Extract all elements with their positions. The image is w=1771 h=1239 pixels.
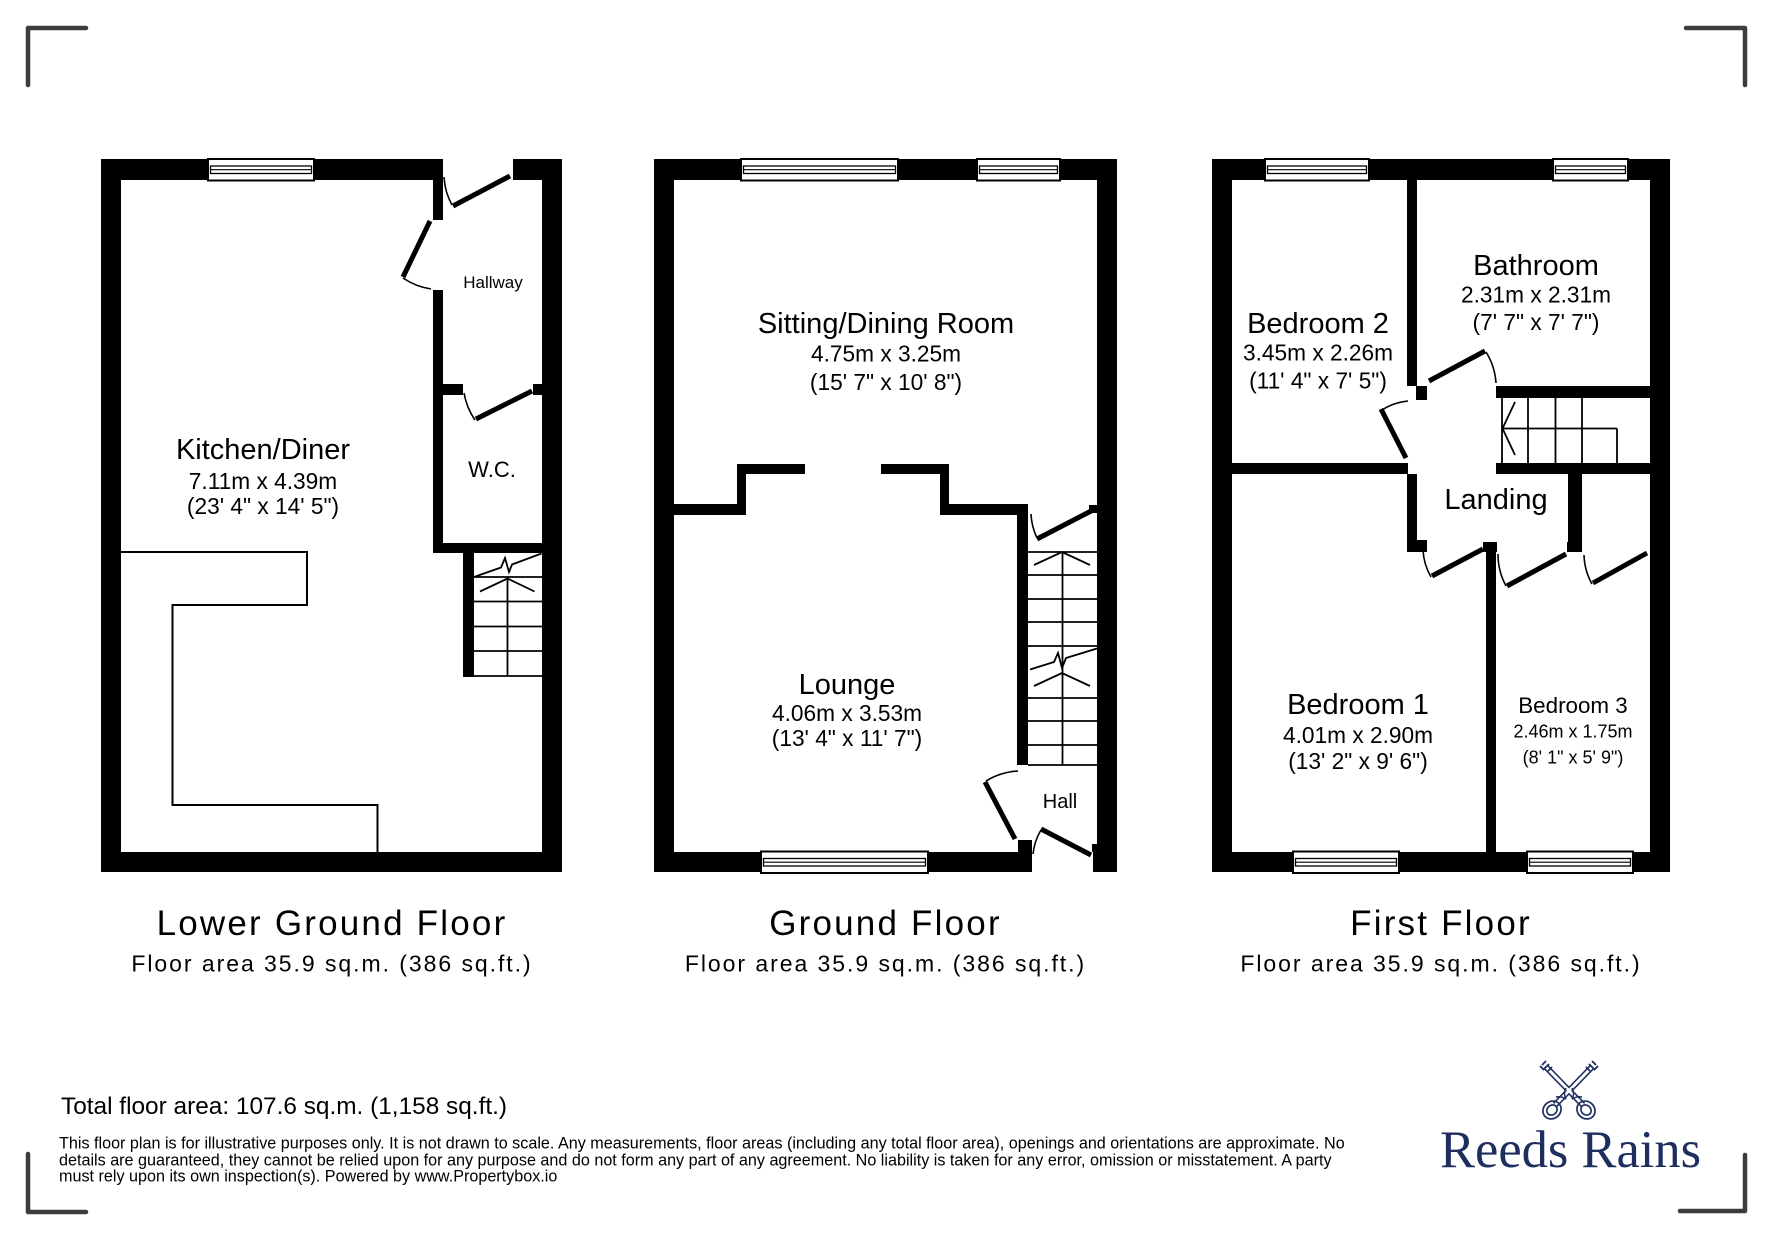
svg-text:7.11m x 4.39m: 7.11m x 4.39m [189, 468, 337, 494]
svg-text:Lounge: Lounge [799, 669, 896, 701]
svg-text:Floor area 35.9 sq.m. (386 sq.: Floor area 35.9 sq.m. (386 sq.ft.) [685, 951, 1086, 977]
svg-text:Floor area 35.9 sq.m. (386 sq.: Floor area 35.9 sq.m. (386 sq.ft.) [131, 951, 532, 977]
svg-text:3.45m x 2.26m: 3.45m x 2.26m [1243, 340, 1393, 366]
svg-text:4.06m x 3.53m: 4.06m x 3.53m [772, 700, 922, 726]
svg-text:(13' 4" x 11' 7"): (13' 4" x 11' 7") [772, 725, 922, 751]
svg-text:(8' 1" x 5' 9"): (8' 1" x 5' 9") [1523, 748, 1624, 768]
svg-text:2.31m x 2.31m: 2.31m x 2.31m [1461, 282, 1611, 308]
svg-text:(13' 2" x 9' 6"): (13' 2" x 9' 6") [1288, 748, 1428, 774]
svg-text:Kitchen/Diner: Kitchen/Diner [176, 434, 350, 466]
svg-text:First Floor: First Floor [1350, 904, 1532, 943]
svg-text:must rely upon its own inspect: must rely upon its own inspection(s). Po… [59, 1168, 557, 1186]
svg-text:(11' 4" x 7' 5"): (11' 4" x 7' 5") [1249, 368, 1387, 394]
svg-text:Lower Ground Floor: Lower Ground Floor [157, 904, 508, 943]
svg-text:Total floor area: 107.6 sq.m.: Total floor area: 107.6 sq.m. (1,158 sq.… [61, 1093, 507, 1120]
svg-text:Bathroom: Bathroom [1473, 250, 1599, 282]
svg-text:(15' 7" x 10' 8"): (15' 7" x 10' 8") [810, 369, 962, 395]
svg-text:2.46m x 1.75m: 2.46m x 1.75m [1513, 722, 1632, 742]
svg-text:4.01m x 2.90m: 4.01m x 2.90m [1283, 722, 1433, 748]
svg-text:4.75m x 3.25m: 4.75m x 3.25m [811, 341, 961, 367]
svg-text:Hall: Hall [1043, 791, 1077, 813]
svg-text:(7' 7" x 7' 7"): (7' 7" x 7' 7") [1473, 309, 1600, 335]
svg-text:Reeds Rains: Reeds Rains [1440, 1121, 1701, 1179]
svg-text:Bedroom 2: Bedroom 2 [1247, 308, 1389, 340]
svg-text:Landing: Landing [1444, 484, 1547, 516]
svg-text:Floor area 35.9 sq.m. (386 sq.: Floor area 35.9 sq.m. (386 sq.ft.) [1240, 951, 1641, 977]
svg-text:Bedroom 3: Bedroom 3 [1518, 693, 1628, 718]
svg-text:Bedroom 1: Bedroom 1 [1287, 689, 1429, 721]
svg-text:(23' 4" x 14' 5"): (23' 4" x 14' 5") [187, 493, 339, 519]
svg-text:Hallway: Hallway [463, 273, 523, 292]
svg-text:This floor plan is for illustr: This floor plan is for illustrative purp… [59, 1135, 1345, 1153]
svg-text:Sitting/Dining Room: Sitting/Dining Room [758, 308, 1014, 340]
svg-text:Ground Floor: Ground Floor [769, 904, 1002, 943]
svg-text:W.C.: W.C. [468, 457, 516, 482]
